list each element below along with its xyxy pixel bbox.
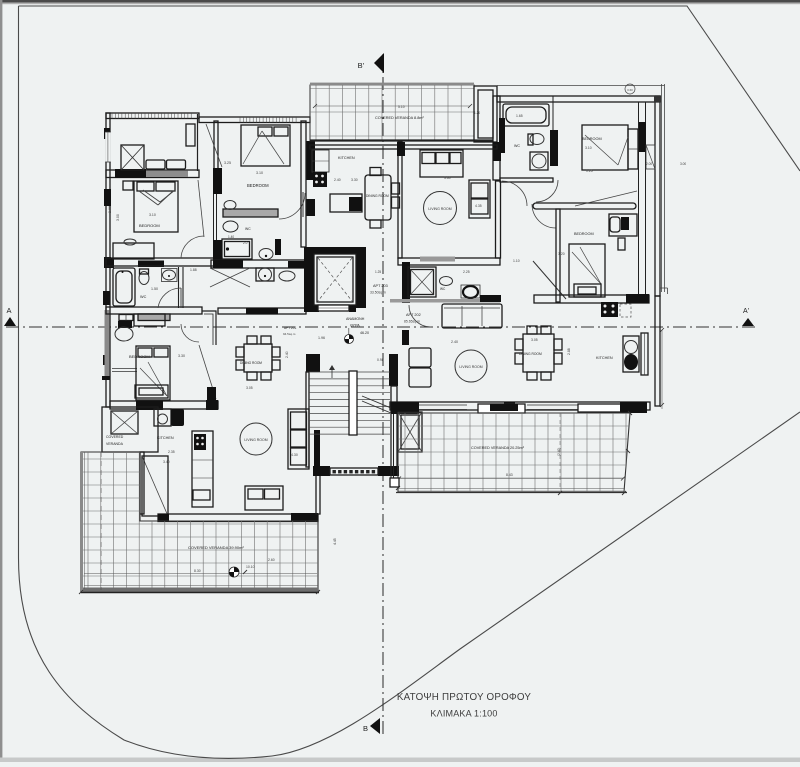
svg-text:1.40: 1.40 — [228, 235, 234, 239]
svg-text:3.10: 3.10 — [256, 171, 263, 175]
svg-text:3.60: 3.60 — [444, 176, 451, 180]
svg-text:4.30: 4.30 — [291, 453, 298, 457]
svg-text:3.25: 3.25 — [224, 161, 231, 165]
svg-text:3.30: 3.30 — [351, 178, 358, 182]
svg-text:ΚΑΤΟΨΗ ΠΡΩΤΟΥ ΟΡΟΦΟΥ: ΚΑΤΟΨΗ ΠΡΩΤΟΥ ΟΡΟΦΟΥ — [397, 692, 532, 703]
svg-text:KITCHEN: KITCHEN — [596, 356, 613, 360]
svg-text:KITCHEN: KITCHEN — [157, 436, 174, 440]
svg-text:B': B' — [358, 61, 365, 70]
svg-text:WC: WC — [140, 295, 147, 299]
svg-text:WC: WC — [514, 144, 520, 148]
svg-text:APT 202: APT 202 — [406, 313, 421, 317]
svg-text:COVERED: COVERED — [106, 435, 124, 439]
svg-text:WC: WC — [245, 227, 251, 231]
svg-text:B: B — [363, 724, 368, 733]
svg-text:APT 203: APT 203 — [373, 284, 388, 288]
svg-text:2.40: 2.40 — [334, 178, 341, 182]
svg-text:1.50: 1.50 — [151, 287, 158, 291]
svg-text:DINING ROOM: DINING ROOM — [519, 352, 542, 356]
svg-text:8.30: 8.30 — [194, 569, 201, 573]
svg-text:1.25: 1.25 — [586, 169, 593, 173]
svg-text:1.88: 1.88 — [190, 268, 197, 272]
svg-text:2.88: 2.88 — [567, 348, 571, 355]
svg-text:BEDROOM: BEDROOM — [247, 183, 269, 188]
svg-text:A: A — [7, 306, 12, 315]
svg-text:3.40: 3.40 — [163, 460, 170, 464]
svg-text:BEDROOM: BEDROOM — [582, 137, 602, 141]
svg-text:1.96: 1.96 — [318, 336, 325, 340]
svg-text:2.25: 2.25 — [463, 270, 470, 274]
svg-text:0.60: 0.60 — [627, 88, 633, 92]
svg-text:BEDROOM: BEDROOM — [574, 232, 594, 236]
svg-text:1.10: 1.10 — [513, 259, 520, 263]
svg-text:1.65: 1.65 — [516, 114, 523, 118]
svg-text:0.98: 0.98 — [377, 358, 384, 362]
svg-text:2.40: 2.40 — [285, 351, 289, 358]
svg-text:DINING ROOM: DINING ROOM — [366, 194, 389, 198]
svg-text:ΘΥΡΑ: ΘΥΡΑ — [350, 324, 360, 328]
svg-text:2.00: 2.00 — [646, 162, 652, 166]
svg-text:BEDROOM: BEDROOM — [129, 354, 150, 359]
svg-text:3.00: 3.00 — [108, 206, 112, 213]
svg-text:DINING ROOM: DINING ROOM — [240, 361, 262, 365]
svg-text:KITCHEN: KITCHEN — [338, 156, 355, 160]
svg-text:94.5sq.m: 94.5sq.m — [283, 332, 296, 336]
svg-text:5.10: 5.10 — [398, 105, 405, 109]
svg-text:COVERED VERANDA 39.90m²: COVERED VERANDA 39.90m² — [188, 545, 244, 550]
svg-text:3.10: 3.10 — [585, 146, 592, 150]
svg-text:A': A' — [743, 308, 749, 315]
svg-text:1.20: 1.20 — [474, 111, 480, 115]
svg-text:LIVING ROOM: LIVING ROOM — [244, 438, 267, 442]
svg-text:BEDROOM: BEDROOM — [139, 223, 160, 228]
svg-text:2.35: 2.35 — [168, 450, 175, 454]
svg-text:3.20: 3.20 — [558, 252, 565, 256]
svg-text:2.0: 2.0 — [243, 241, 248, 245]
svg-text:2.60: 2.60 — [268, 558, 275, 562]
svg-text:4.35: 4.35 — [475, 204, 482, 208]
svg-text:ΚΛΙΜΑΚΑ 1:100: ΚΛΙΜΑΚΑ 1:100 — [430, 709, 497, 719]
svg-text:3.00: 3.00 — [116, 214, 120, 221]
svg-text:COVERED VERANDA 8.8m²: COVERED VERANDA 8.8m² — [375, 116, 424, 120]
svg-text:APT 201: APT 201 — [284, 326, 297, 330]
svg-text:LIVING ROOM: LIVING ROOM — [459, 365, 482, 369]
svg-text:3.30: 3.30 — [178, 354, 185, 358]
svg-text:COVERED VERANDA 20.25m²: COVERED VERANDA 20.25m² — [471, 446, 525, 450]
svg-text:46.20: 46.20 — [360, 331, 369, 335]
svg-text:33.50sq.m: 33.50sq.m — [370, 291, 386, 295]
svg-text:WC: WC — [440, 287, 446, 291]
svg-text:3.00: 3.00 — [680, 162, 686, 166]
svg-text:1.25: 1.25 — [375, 270, 381, 274]
svg-text:VERANDA: VERANDA — [106, 442, 124, 446]
svg-text:8.43: 8.43 — [506, 473, 513, 477]
svg-text:3.05: 3.05 — [531, 338, 538, 342]
svg-text:4.45: 4.45 — [333, 538, 337, 545]
svg-text:(2.40): (2.40) — [557, 448, 561, 456]
svg-text:3.10: 3.10 — [149, 213, 156, 217]
svg-text:ΑΝΑΜΟΝΗ: ΑΝΑΜΟΝΗ — [346, 317, 365, 321]
svg-text:2.40: 2.40 — [451, 340, 458, 344]
svg-text:3.05: 3.05 — [246, 386, 253, 390]
svg-text:LIVING ROOM: LIVING ROOM — [428, 207, 451, 211]
svg-text:10.10: 10.10 — [246, 565, 255, 569]
